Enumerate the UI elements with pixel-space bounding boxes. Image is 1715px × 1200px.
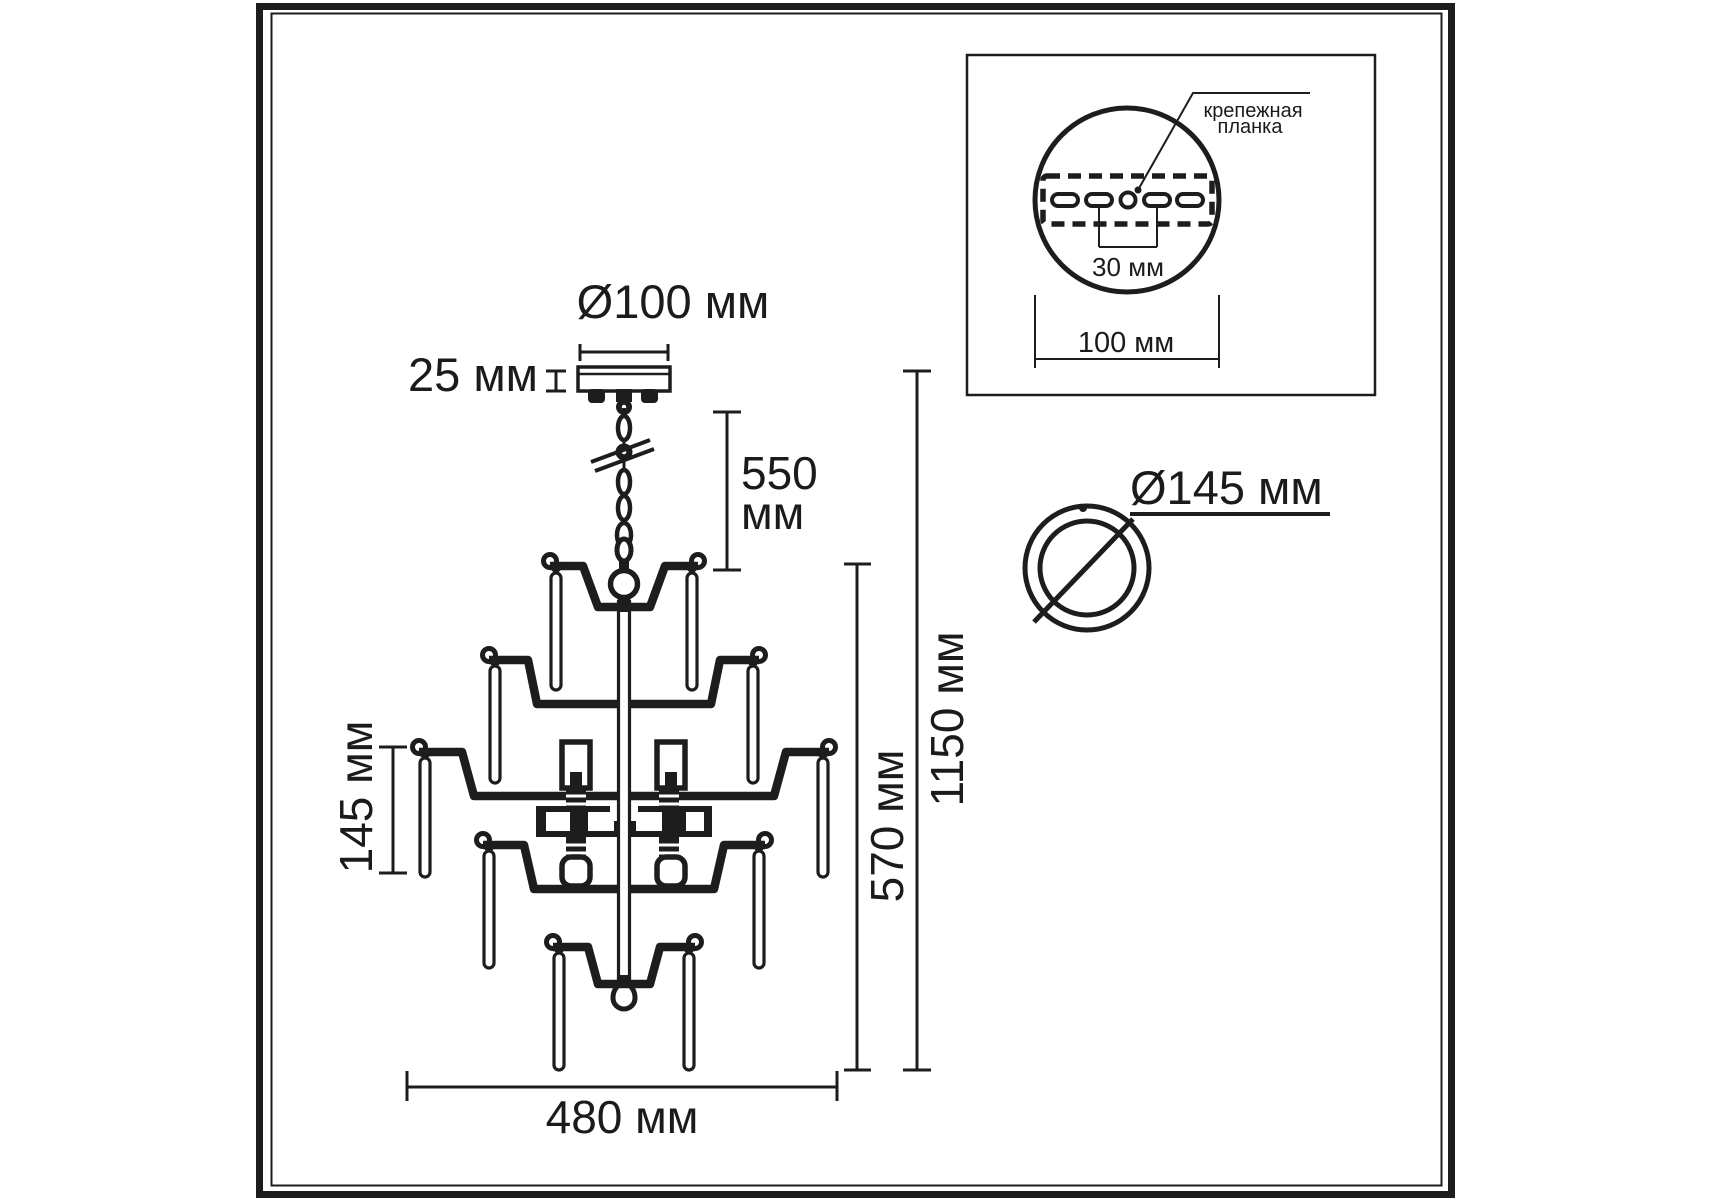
suspension-chain (591, 408, 654, 548)
chain-length-dimension (713, 412, 741, 570)
canopy-height-dimension (546, 371, 566, 391)
pendant-rod (748, 666, 758, 783)
canopy-right-foot (641, 389, 658, 403)
canopy-left-foot (588, 389, 605, 403)
ring-diameter-label: Ø145 мм (1130, 461, 1323, 514)
chain-link (618, 416, 630, 440)
total-height-label: 1150 мм (921, 632, 973, 807)
mounting-plate-dashed-outline (1043, 176, 1212, 224)
canopy-body (578, 367, 670, 391)
top-connector (611, 539, 638, 612)
pendant-rod (484, 851, 494, 968)
ring-detail: Ø145 мм (1025, 461, 1330, 630)
top-ball (611, 571, 638, 598)
pendant-rod (754, 851, 764, 968)
center-hole (1121, 193, 1136, 208)
lower-socket (562, 857, 590, 886)
canopy-diameter-dimension (580, 344, 668, 361)
technical-drawing-page: крепежная планка 30 мм 100 мм Ø145 мм Ø1… (0, 0, 1715, 1200)
ring-diagonal (1034, 519, 1133, 622)
chain-length-unit: мм (741, 487, 804, 539)
plate-width-label: 100 мм (1078, 327, 1174, 359)
canopy-diameter-label: Ø100 мм (577, 275, 770, 328)
body-width-label: 480 мм (546, 1091, 699, 1143)
pendant-rod (687, 573, 697, 690)
pendant-length-label: 145 мм (330, 721, 382, 874)
mounting-plate-label-line2: планка (1218, 116, 1284, 138)
lower-socket (657, 857, 685, 886)
pendant-rod (554, 953, 564, 1070)
pendant-rod (818, 758, 828, 877)
chain-link (618, 470, 630, 494)
central-stem (619, 600, 630, 983)
pendant-rod (490, 666, 500, 783)
ring-top-knob (1079, 504, 1087, 512)
body-height-label: 570 мм (861, 750, 913, 903)
ceiling-canopy (578, 367, 670, 415)
canopy-height-label: 25 мм (408, 348, 538, 401)
pendant-rod (684, 953, 694, 1070)
pendant-length-dimension (379, 747, 407, 873)
pendant-rod (420, 758, 430, 877)
hole-spacing-dimension (1099, 208, 1157, 247)
mounting-plate-slots (1052, 193, 1203, 208)
chain-link (618, 496, 630, 520)
mounting-plate-inset: крепежная планка 30 мм 100 мм (967, 55, 1375, 395)
pendant-rod (551, 573, 561, 690)
hole-spacing-label: 30 мм (1092, 252, 1164, 282)
chandelier-dimension-diagram: крепежная планка 30 мм 100 мм Ø145 мм Ø1… (0, 0, 1715, 1200)
